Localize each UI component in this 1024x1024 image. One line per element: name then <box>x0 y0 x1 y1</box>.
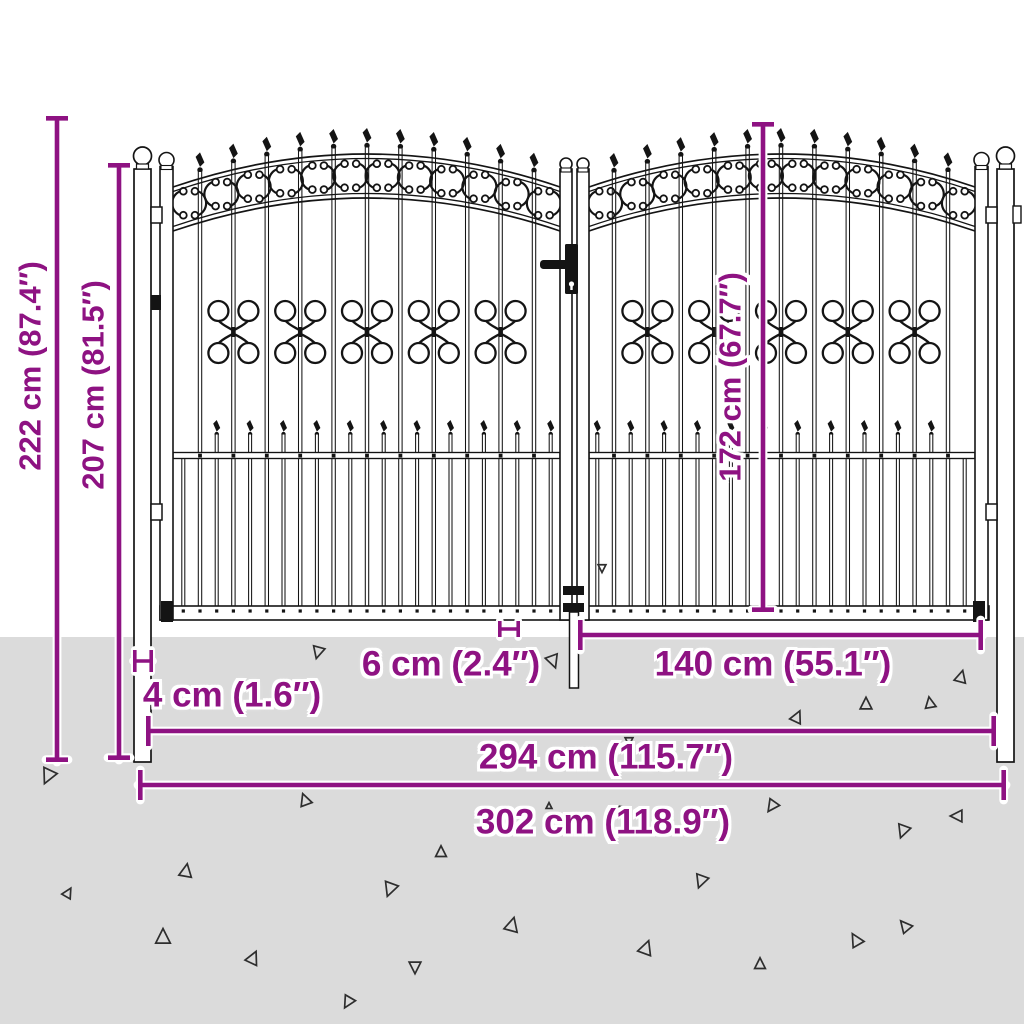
dim-label-gap-width: 6 cm (2.4″) <box>362 647 540 682</box>
dim-label-post-width: 4 cm (1.6″) <box>143 678 321 713</box>
dim-label-inner-width: 294 cm (115.7″) <box>479 740 733 775</box>
dim-label-leaf-height: 172 cm (67.7″) <box>715 272 746 482</box>
dim-label-total-height: 222 cm (87.4″) <box>15 261 46 471</box>
dim-label-post-height: 207 cm (81.5″) <box>78 280 109 490</box>
dim-label-leaf-width: 140 cm (55.1″) <box>655 647 892 682</box>
gate-diagram-canvas <box>0 0 1024 1024</box>
gate-dimension-diagram: 222 cm (87.4″) 207 cm (81.5″) 172 cm (67… <box>0 0 1024 1024</box>
dim-label-total-width: 302 cm (118.9″) <box>476 805 730 840</box>
